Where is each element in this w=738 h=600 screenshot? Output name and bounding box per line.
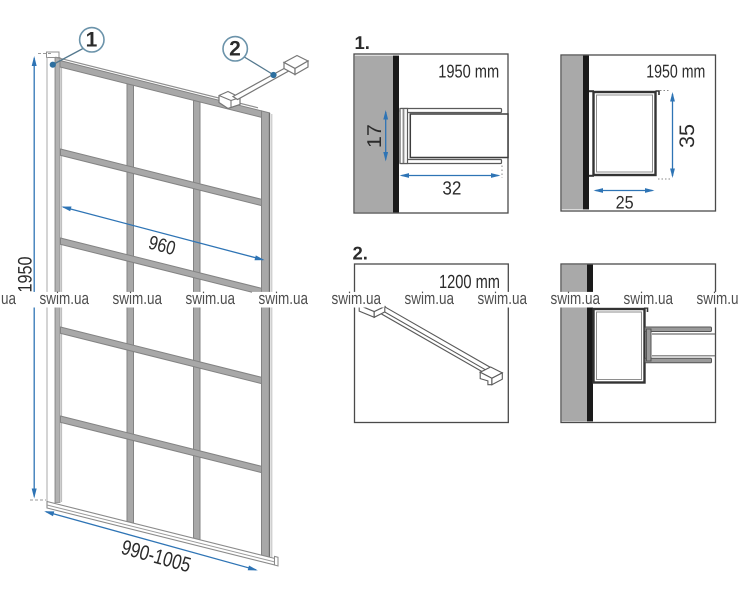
- svg-text:swim.ua: swim.ua: [405, 289, 455, 308]
- svg-text:swim.ua: swim.ua: [478, 289, 528, 308]
- svg-text:swim.ua: swim.ua: [113, 289, 163, 308]
- svg-text:swim.ua: swim.ua: [332, 289, 382, 308]
- svg-text:swim.ua: swim.ua: [40, 289, 90, 308]
- svg-text:swim.ua: swim.ua: [624, 289, 674, 308]
- svg-text:1: 1: [86, 29, 98, 52]
- svg-text:32: 32: [442, 179, 461, 200]
- svg-text:1950 mm: 1950 mm: [438, 61, 499, 82]
- svg-text:swim.ua: swim.ua: [0, 289, 16, 308]
- svg-text:swim.ua: swim.ua: [697, 289, 738, 308]
- svg-text:17: 17: [364, 124, 386, 148]
- svg-text:35: 35: [676, 124, 699, 148]
- svg-text:swim.ua: swim.ua: [186, 289, 236, 308]
- svg-text:swim.ua: swim.ua: [551, 289, 601, 308]
- svg-text:1950: 1950: [15, 256, 37, 292]
- svg-text:25: 25: [616, 192, 634, 212]
- svg-text:1.: 1.: [355, 32, 370, 53]
- svg-text:swim.ua: swim.ua: [259, 289, 309, 308]
- svg-text:2.: 2.: [353, 243, 368, 264]
- svg-text:2: 2: [229, 38, 241, 61]
- svg-text:1950 mm: 1950 mm: [646, 61, 705, 82]
